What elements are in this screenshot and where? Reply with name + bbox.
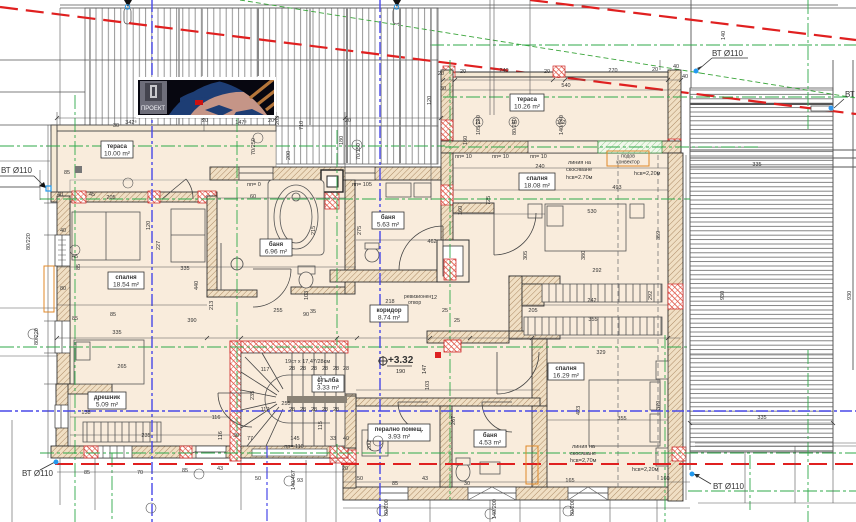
svg-text:линия на: линия на	[572, 444, 596, 450]
svg-text:33: 33	[330, 436, 336, 442]
svg-text:115: 115	[318, 421, 324, 430]
svg-text:147: 147	[422, 365, 428, 374]
svg-text:190: 190	[396, 369, 405, 375]
svg-text:140: 140	[721, 31, 727, 40]
svg-text:hсв=2,20м: hсв=2,20м	[632, 467, 659, 473]
svg-text:70/250: 70/250	[251, 138, 257, 155]
svg-text:20: 20	[460, 69, 466, 75]
svg-text:255: 255	[281, 401, 290, 407]
svg-text:28: 28	[322, 366, 328, 372]
svg-text:335: 335	[112, 330, 121, 336]
svg-text:30: 30	[440, 86, 446, 92]
svg-text:ВТ: ВТ	[845, 90, 855, 99]
svg-text:пп= 105: пп= 105	[352, 182, 372, 188]
svg-text:30: 30	[113, 123, 119, 129]
svg-text:4.53 m²: 4.53 m²	[479, 440, 502, 447]
svg-text:200: 200	[367, 441, 373, 450]
svg-text:423: 423	[576, 406, 582, 415]
svg-text:85: 85	[72, 316, 78, 322]
svg-text:20: 20	[345, 118, 351, 124]
svg-text:180: 180	[339, 136, 345, 145]
svg-text:пп= 110: пп= 110	[284, 444, 303, 450]
svg-text:дрешник: дрешник	[94, 395, 120, 401]
svg-text:70: 70	[137, 470, 143, 476]
svg-text:пп= 10: пп= 10	[530, 154, 547, 160]
svg-text:70/150: 70/150	[356, 143, 362, 160]
svg-text:265: 265	[117, 364, 126, 370]
svg-text:20: 20	[268, 118, 274, 124]
svg-text:359: 359	[656, 231, 662, 240]
svg-text:3.93 m²: 3.93 m²	[388, 434, 411, 441]
svg-text:335: 335	[757, 415, 766, 421]
svg-text:379: 379	[656, 401, 662, 410]
svg-text:6.96 m²: 6.96 m²	[265, 249, 288, 256]
svg-text:160: 160	[458, 206, 464, 215]
svg-text:12: 12	[431, 295, 437, 301]
svg-text:28: 28	[289, 407, 295, 413]
svg-text:40: 40	[673, 64, 679, 70]
svg-text:конвектор: конвектор	[616, 160, 639, 166]
svg-text:20: 20	[342, 466, 348, 472]
svg-text:скосяване: скосяване	[566, 167, 592, 173]
svg-text:115: 115	[318, 376, 324, 385]
svg-text:120: 120	[427, 96, 433, 105]
svg-text:5.09 m²: 5.09 m²	[96, 402, 119, 409]
svg-text:+3.32: +3.32	[388, 355, 414, 366]
svg-text:20: 20	[202, 118, 208, 124]
svg-text:355: 355	[617, 416, 626, 422]
svg-text:80/220: 80/220	[26, 233, 32, 250]
svg-text:40: 40	[57, 192, 63, 198]
svg-text:10.00 m²: 10.00 m²	[104, 151, 131, 158]
svg-text:530: 530	[587, 209, 596, 215]
svg-text:440: 440	[194, 281, 200, 290]
svg-text:18.08 m²: 18.08 m²	[524, 183, 551, 190]
svg-text:355: 355	[588, 317, 597, 323]
svg-text:255: 255	[273, 308, 282, 314]
svg-text:292: 292	[648, 291, 654, 300]
svg-text:235: 235	[250, 391, 256, 400]
svg-text:25: 25	[442, 308, 448, 314]
svg-text:85: 85	[64, 170, 70, 176]
svg-text:335: 335	[752, 162, 761, 168]
svg-text:120: 120	[146, 221, 152, 230]
svg-text:540: 540	[561, 83, 570, 89]
svg-text:линия на: линия на	[568, 160, 592, 166]
svg-text:140/467: 140/467	[291, 470, 297, 490]
svg-text:20: 20	[438, 71, 444, 77]
svg-text:80/200: 80/200	[570, 499, 576, 516]
svg-text:227: 227	[156, 241, 162, 250]
svg-text:hсв=2,70м: hсв=2,70м	[570, 458, 597, 464]
svg-text:335: 335	[180, 266, 189, 272]
svg-text:117: 117	[261, 407, 270, 413]
svg-text:390: 390	[187, 318, 196, 324]
svg-text:342⁶: 342⁶	[125, 119, 136, 126]
svg-text:16.29 m²: 16.29 m²	[553, 373, 580, 380]
svg-text:ВТ Ø110: ВТ Ø110	[22, 469, 53, 478]
svg-text:462: 462	[427, 239, 436, 245]
svg-text:85: 85	[110, 312, 116, 318]
svg-text:30: 30	[464, 481, 470, 487]
svg-text:203: 203	[275, 116, 281, 125]
svg-text:пп= 10: пп= 10	[455, 154, 472, 160]
svg-text:160: 160	[463, 136, 469, 145]
svg-text:18.54 m²: 18.54 m²	[113, 282, 140, 289]
svg-text:пп= 0: пп= 0	[247, 182, 261, 188]
svg-text:8.74 m²: 8.74 m²	[378, 315, 401, 322]
svg-text:165: 165	[565, 478, 574, 484]
svg-text:28: 28	[311, 366, 317, 372]
svg-text:213: 213	[209, 301, 215, 310]
svg-text:240: 240	[499, 68, 508, 74]
svg-text:40: 40	[343, 436, 349, 442]
svg-text:ПРОЕКТ: ПРОЕКТ	[141, 106, 165, 112]
svg-text:267: 267	[451, 416, 457, 425]
svg-text:105/240: 105/240	[476, 115, 482, 135]
svg-text:отвор: отвор	[408, 300, 421, 306]
svg-text:60: 60	[250, 194, 256, 200]
svg-text:19ст x 17,47/28см: 19ст x 17,47/28см	[285, 359, 330, 365]
svg-text:85: 85	[182, 468, 188, 474]
svg-text:коридор: коридор	[376, 308, 401, 314]
svg-text:20: 20	[544, 69, 550, 75]
svg-text:25: 25	[454, 318, 460, 324]
svg-text:930: 930	[720, 291, 726, 300]
svg-text:116: 116	[212, 415, 221, 421]
svg-text:275: 275	[357, 226, 363, 235]
svg-text:117: 117	[261, 367, 270, 373]
svg-text:147⁶: 147⁶	[235, 119, 246, 126]
svg-text:138: 138	[81, 410, 90, 416]
svg-text:80: 80	[60, 286, 66, 292]
svg-text:баня: баня	[381, 214, 396, 221]
svg-text:28: 28	[289, 366, 295, 372]
svg-text:85: 85	[392, 481, 398, 487]
svg-text:80/200: 80/200	[384, 499, 390, 516]
svg-text:баня: баня	[269, 241, 284, 248]
svg-text:380: 380	[581, 251, 587, 260]
svg-text:80/240: 80/240	[512, 118, 518, 135]
svg-text:215: 215	[311, 226, 317, 235]
svg-text:80/220: 80/220	[34, 328, 40, 345]
svg-text:205: 205	[528, 308, 537, 314]
svg-text:спалня: спалня	[115, 275, 137, 281]
svg-text:баня: баня	[483, 432, 498, 439]
svg-text:77: 77	[247, 436, 253, 442]
svg-text:493: 493	[612, 185, 621, 191]
svg-text:28: 28	[333, 407, 339, 413]
svg-text:103: 103	[304, 291, 310, 300]
svg-text:85: 85	[76, 264, 82, 270]
svg-text:спалня: спалня	[526, 176, 548, 182]
svg-text:930: 930	[847, 291, 853, 300]
svg-text:тераса: тераса	[517, 97, 538, 103]
svg-text:ВТ Ø110: ВТ Ø110	[1, 166, 32, 175]
svg-text:103: 103	[425, 381, 431, 390]
svg-text:50: 50	[255, 476, 261, 482]
svg-text:329: 329	[596, 350, 605, 356]
svg-text:20: 20	[652, 67, 658, 73]
svg-text:28: 28	[333, 366, 339, 372]
svg-text:160: 160	[660, 476, 669, 482]
svg-text:43: 43	[422, 476, 428, 482]
svg-text:200: 200	[286, 151, 292, 160]
svg-text:218: 218	[385, 299, 394, 305]
svg-text:скосяване: скосяване	[570, 451, 596, 457]
svg-text:ВТ Ø110: ВТ Ø110	[713, 482, 744, 491]
svg-text:305: 305	[523, 251, 529, 260]
svg-text:242: 242	[587, 298, 596, 304]
svg-text:40: 40	[60, 228, 66, 234]
svg-text:240: 240	[535, 164, 544, 170]
svg-text:50: 50	[357, 476, 363, 482]
svg-text:5.63 m²: 5.63 m²	[377, 222, 400, 229]
svg-text:30: 30	[233, 433, 239, 439]
svg-text:28: 28	[311, 407, 317, 413]
svg-text:85: 85	[84, 470, 90, 476]
svg-text:45: 45	[89, 192, 95, 198]
svg-text:140/240: 140/240	[559, 115, 565, 135]
svg-text:28: 28	[300, 366, 306, 372]
svg-text:235: 235	[141, 433, 150, 439]
svg-text:спалня: спалня	[555, 366, 577, 372]
svg-text:40: 40	[682, 74, 688, 80]
svg-text:28: 28	[343, 366, 349, 372]
svg-text:270: 270	[608, 68, 617, 74]
svg-text:ВТ Ø110: ВТ Ø110	[712, 49, 743, 58]
svg-text:43: 43	[217, 466, 223, 472]
svg-text:тераса: тераса	[107, 144, 128, 150]
svg-text:пп= 10: пп= 10	[492, 154, 509, 160]
svg-text:28: 28	[300, 407, 306, 413]
svg-text:перално помещ.: перално помещ.	[375, 427, 424, 433]
svg-text:hсв=2,20м: hсв=2,20м	[634, 171, 661, 177]
svg-text:90: 90	[303, 312, 309, 318]
svg-text:116: 116	[218, 431, 224, 440]
svg-text:10.26 m²: 10.26 m²	[514, 104, 541, 111]
svg-text:35: 35	[310, 309, 316, 315]
svg-text:140/200: 140/200	[492, 499, 498, 519]
svg-text:710: 710	[299, 121, 305, 130]
svg-text:hсв=2.70м: hсв=2.70м	[566, 175, 593, 181]
svg-text:292: 292	[592, 268, 601, 274]
svg-text:93: 93	[297, 478, 303, 484]
svg-text:145: 145	[290, 436, 299, 442]
svg-text:725: 725	[486, 196, 492, 205]
svg-text:28: 28	[322, 407, 328, 413]
svg-text:205: 205	[106, 195, 115, 201]
